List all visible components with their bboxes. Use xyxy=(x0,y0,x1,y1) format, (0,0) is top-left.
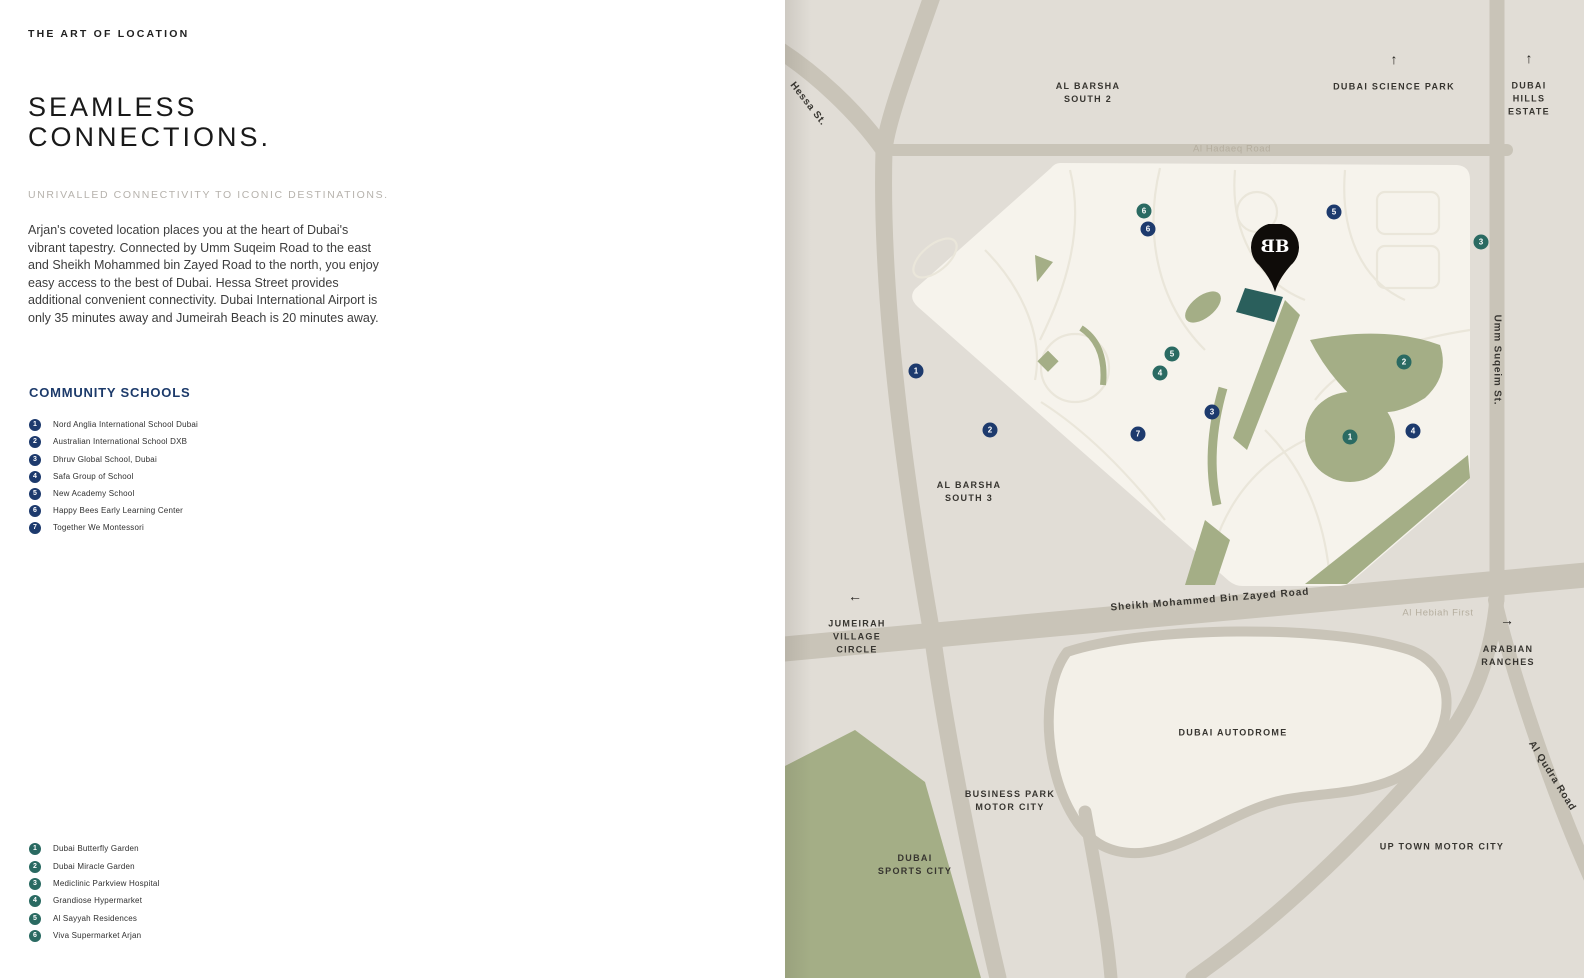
school-marker-badge: 6 xyxy=(29,505,41,517)
school-marker-badge: 7 xyxy=(29,522,41,534)
list-item: 3 Dhruv Global School, Dubai xyxy=(29,453,157,466)
list-item: 4 Grandiose Hypermarket xyxy=(29,894,142,907)
list-item: 6 Viva Supermarket Arjan xyxy=(29,929,141,942)
map-marker-amenity-1: 1 xyxy=(1343,430,1358,445)
map-marker-amenity-2: 2 xyxy=(1397,355,1412,370)
map-marker-school-4: 4 xyxy=(1406,424,1421,439)
list-item: 6 Happy Bees Early Learning Center xyxy=(29,504,183,517)
list-item: 5 Al Sayyah Residences xyxy=(29,912,137,925)
list-item: 1 Nord Anglia International School Dubai xyxy=(29,418,198,431)
brochure-page: THE ART OF LOCATION SEAMLESS CONNECTIONS… xyxy=(0,0,1584,978)
school-marker-badge: 1 xyxy=(29,419,41,431)
amenity-marker-badge: 4 xyxy=(29,895,41,907)
brand-logo-right-glyph: B xyxy=(1275,237,1288,257)
map-label-arabian-ranches: ARABIAN RANCHES xyxy=(1481,643,1535,669)
property-pin: BB xyxy=(1247,224,1303,294)
map-marker-school-5: 5 xyxy=(1327,205,1342,220)
eyebrow-text: THE ART OF LOCATION xyxy=(28,28,189,40)
map-label-dubai-science-park: DUBAI SCIENCE PARK xyxy=(1333,81,1455,94)
page-title: SEAMLESS CONNECTIONS. xyxy=(28,92,271,152)
map-label-dubai-sports-city: DUBAI SPORTS CITY xyxy=(878,852,952,878)
map-marker-school-1: 1 xyxy=(909,364,924,379)
amenity-marker-badge: 3 xyxy=(29,878,41,890)
amenity-marker-badge: 1 xyxy=(29,843,41,855)
map-marker-school-2: 2 xyxy=(983,423,998,438)
map-label-al-barsha-south-2: AL BARSHA SOUTH 2 xyxy=(1056,80,1121,106)
map-label-umm-suqeim-st: Umm Suqeim St. xyxy=(1491,315,1504,406)
brand-logo-left-glyph: B xyxy=(1262,237,1275,257)
page-subtitle: UNRIVALLED CONNECTIVITY TO ICONIC DESTIN… xyxy=(28,189,389,201)
map-label-al-barsha-south-3: AL BARSHA SOUTH 3 xyxy=(937,479,1002,505)
map-marker-amenity-5: 5 xyxy=(1165,347,1180,362)
school-marker-badge: 3 xyxy=(29,454,41,466)
map-marker-school-6: 6 xyxy=(1141,222,1156,237)
school-marker-badge: 4 xyxy=(29,471,41,483)
north-arrow-icon: ↑ xyxy=(1391,51,1398,67)
map-label-up-town-motor-city: UP TOWN MOTOR CITY xyxy=(1380,841,1504,854)
north-arrow-icon: ↑ xyxy=(1526,50,1533,66)
location-map: Hessa St. AL BARSHA SOUTH 2 ↑ DUBAI SCIE… xyxy=(785,0,1584,978)
map-marker-school-7: 7 xyxy=(1131,427,1146,442)
body-paragraph: Arjan's coveted location places you at t… xyxy=(28,222,380,327)
map-marker-school-3: 3 xyxy=(1205,405,1220,420)
map-graphic xyxy=(785,0,1584,978)
amenity-marker-badge: 2 xyxy=(29,861,41,873)
school-marker-badge: 2 xyxy=(29,436,41,448)
list-item: 7 Together We Montessori xyxy=(29,521,144,534)
map-marker-amenity-6: 6 xyxy=(1137,204,1152,219)
page-gutter-shadow xyxy=(785,0,811,978)
list-item: 4 Safa Group of School xyxy=(29,470,134,483)
map-label-business-park-motor-city: BUSINESS PARK MOTOR CITY xyxy=(965,788,1055,814)
map-label-dubai-hills-estate: DUBAI HILLS ESTATE xyxy=(1508,80,1550,119)
map-marker-amenity-4: 4 xyxy=(1153,366,1168,381)
amenity-marker-badge: 5 xyxy=(29,913,41,925)
west-arrow-icon: ← xyxy=(848,588,862,604)
map-marker-amenity-3: 3 xyxy=(1474,235,1489,250)
brand-logo: BB xyxy=(1247,237,1303,257)
east-arrow-icon: → xyxy=(1500,612,1514,628)
map-label-dubai-autodrome: DUBAI AUTODROME xyxy=(1179,727,1288,740)
amenity-marker-badge: 6 xyxy=(29,930,41,942)
map-label-al-hadaeq-road: Al Hadaeq Road xyxy=(1193,143,1271,156)
school-marker-badge: 5 xyxy=(29,488,41,500)
list-item: 1 Dubai Butterfly Garden xyxy=(29,842,139,855)
map-label-al-hebiah-first: Al Hebiah First xyxy=(1402,607,1473,620)
pin-shape xyxy=(1247,224,1303,294)
list-item: 5 New Academy School xyxy=(29,487,134,500)
list-item: 3 Mediclinic Parkview Hospital xyxy=(29,877,160,890)
map-label-jumeirah-village-circle: JUMEIRAH VILLAGE CIRCLE xyxy=(828,618,885,657)
list-item: 2 Dubai Miracle Garden xyxy=(29,860,135,873)
community-schools-heading: COMMUNITY SCHOOLS xyxy=(29,385,190,400)
list-item: 2 Australian International School DXB xyxy=(29,435,187,448)
